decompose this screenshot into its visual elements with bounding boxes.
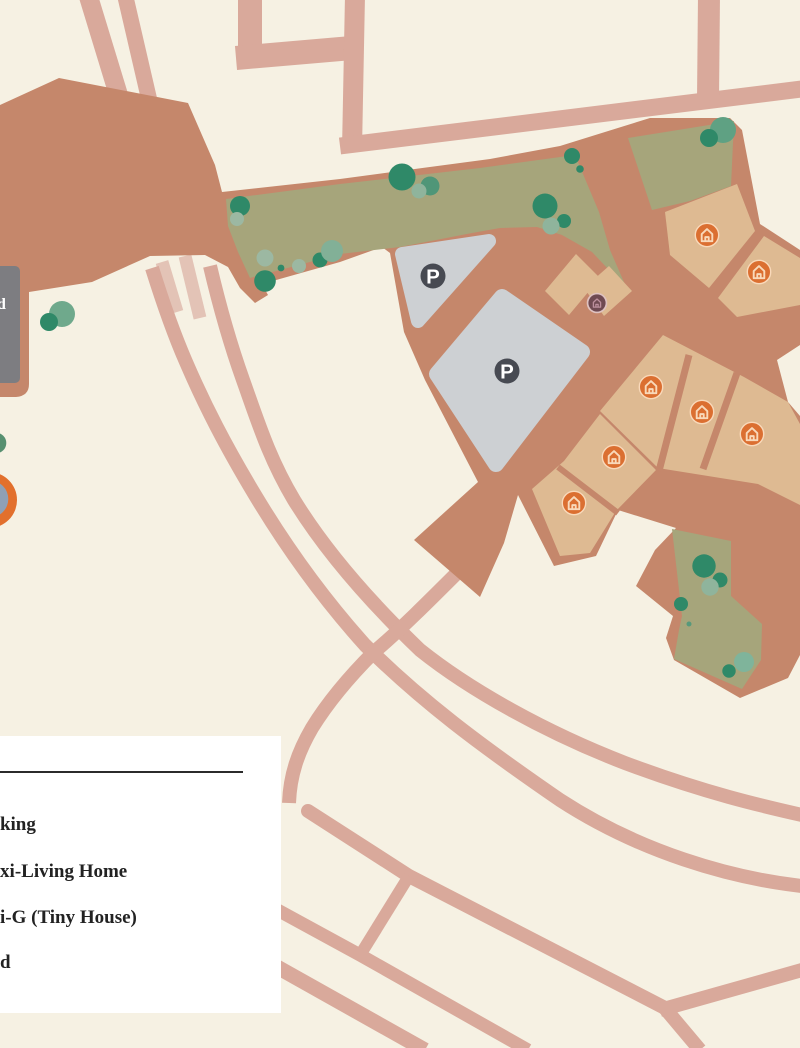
svg-text:d: d [0, 296, 6, 313]
svg-text:P: P [500, 360, 514, 383]
svg-text:P: P [426, 265, 440, 288]
svg-text:Maxi-Living Home: Maxi-Living Home [0, 861, 127, 882]
svg-text:Midi-G (Tiny House): Midi-G (Tiny House) [0, 907, 137, 928]
svg-text:Bestand: Bestand [0, 952, 11, 973]
svg-text:Parking: Parking [0, 814, 36, 835]
